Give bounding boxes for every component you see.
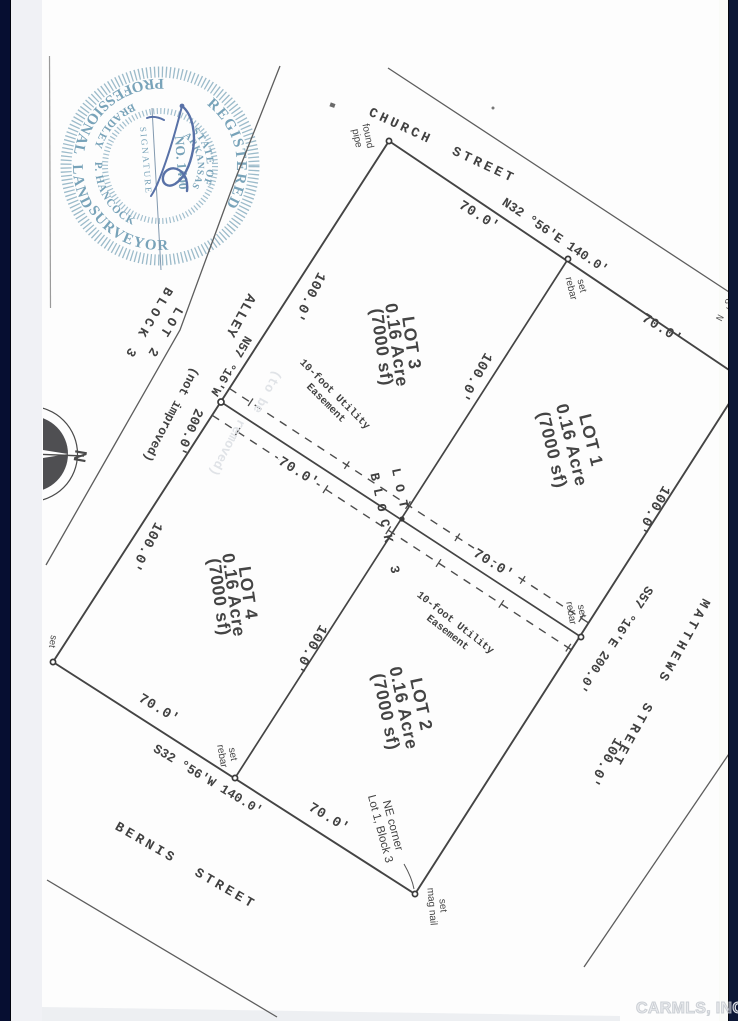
- svg-text:set: set: [46, 634, 59, 649]
